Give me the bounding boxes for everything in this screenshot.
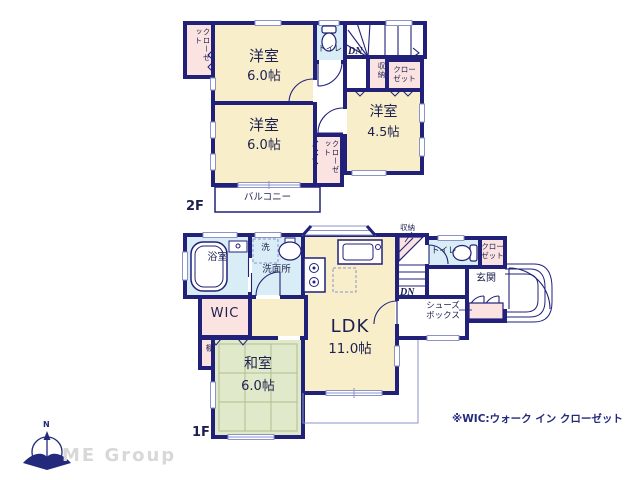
f2-stairs-dn-label: DN [348, 46, 362, 57]
f1-wic-label: WIC [200, 307, 250, 321]
f2-room2-size: 6.0帖 [213, 139, 315, 153]
f2-hall2-area [345, 57, 368, 90]
floor-plan-graphics [0, 0, 640, 480]
f2-closet-right-label: クローゼット [390, 65, 419, 83]
f2-storage-label: 収納 [371, 62, 385, 86]
f1-bay-window [303, 226, 375, 235]
f1-toilet-icon [453, 245, 477, 261]
f2-closet-middle-label: クローゼット [317, 140, 339, 174]
f2-room3-label: 洋室 [345, 105, 422, 120]
f2-closet-top-left-label: クローゼット [188, 28, 210, 62]
f1-washitsu-size: 6.0帖 [213, 380, 303, 394]
f1-shoebox-label: シューズボックス [424, 301, 462, 321]
f1-closet-label: クローゼット [478, 242, 507, 260]
f1-entrance-label: 玄関 [467, 273, 505, 284]
f1-ldk-size: 11.0帖 [303, 342, 397, 357]
f1-kitchen-sink-icon [338, 240, 382, 264]
f2-balcony-label: バルコニー [215, 193, 320, 203]
wic-note: ※WIC:ウォーク イン クローゼット [452, 414, 623, 426]
brand-watermark: ME Group [62, 446, 176, 466]
f2-room2-label: 洋室 [213, 117, 315, 134]
f2-floor-label: 2F [186, 200, 204, 214]
f1-bath-label: 浴室 [185, 252, 250, 263]
f1-stove-icon [304, 258, 325, 292]
f1-washroom-label: 洗面所 [250, 265, 303, 275]
f1-washitsu-label: 和室 [213, 357, 303, 372]
f1-shelf-label: 棚 [202, 344, 213, 358]
f1-toilet-label: トイレ [431, 247, 457, 256]
f2-room3-size: 4.5帖 [345, 125, 422, 139]
f1-ldk-ext-area [250, 297, 306, 338]
f1-storage-label: 収納 [400, 224, 415, 232]
f1-shoebox [469, 303, 503, 319]
f2-room1-label: 洋室 [213, 48, 315, 65]
f1-laundry-label: 洗 [253, 244, 278, 253]
compass-north-label: N [43, 421, 50, 430]
f1-ldk-label: LDK [303, 317, 397, 337]
f2-toilet-label: トイレ [315, 45, 345, 54]
f1-floor-label: 1F [192, 426, 210, 440]
f2-room1-size: 6.0帖 [213, 70, 315, 84]
f1-stairs-dn-label: DN [400, 287, 414, 298]
floor-plan-page: クローゼット 洋室 6.0帖 トイレ DN 収納 クローゼット 洋室 4.5帖 … [0, 0, 640, 480]
